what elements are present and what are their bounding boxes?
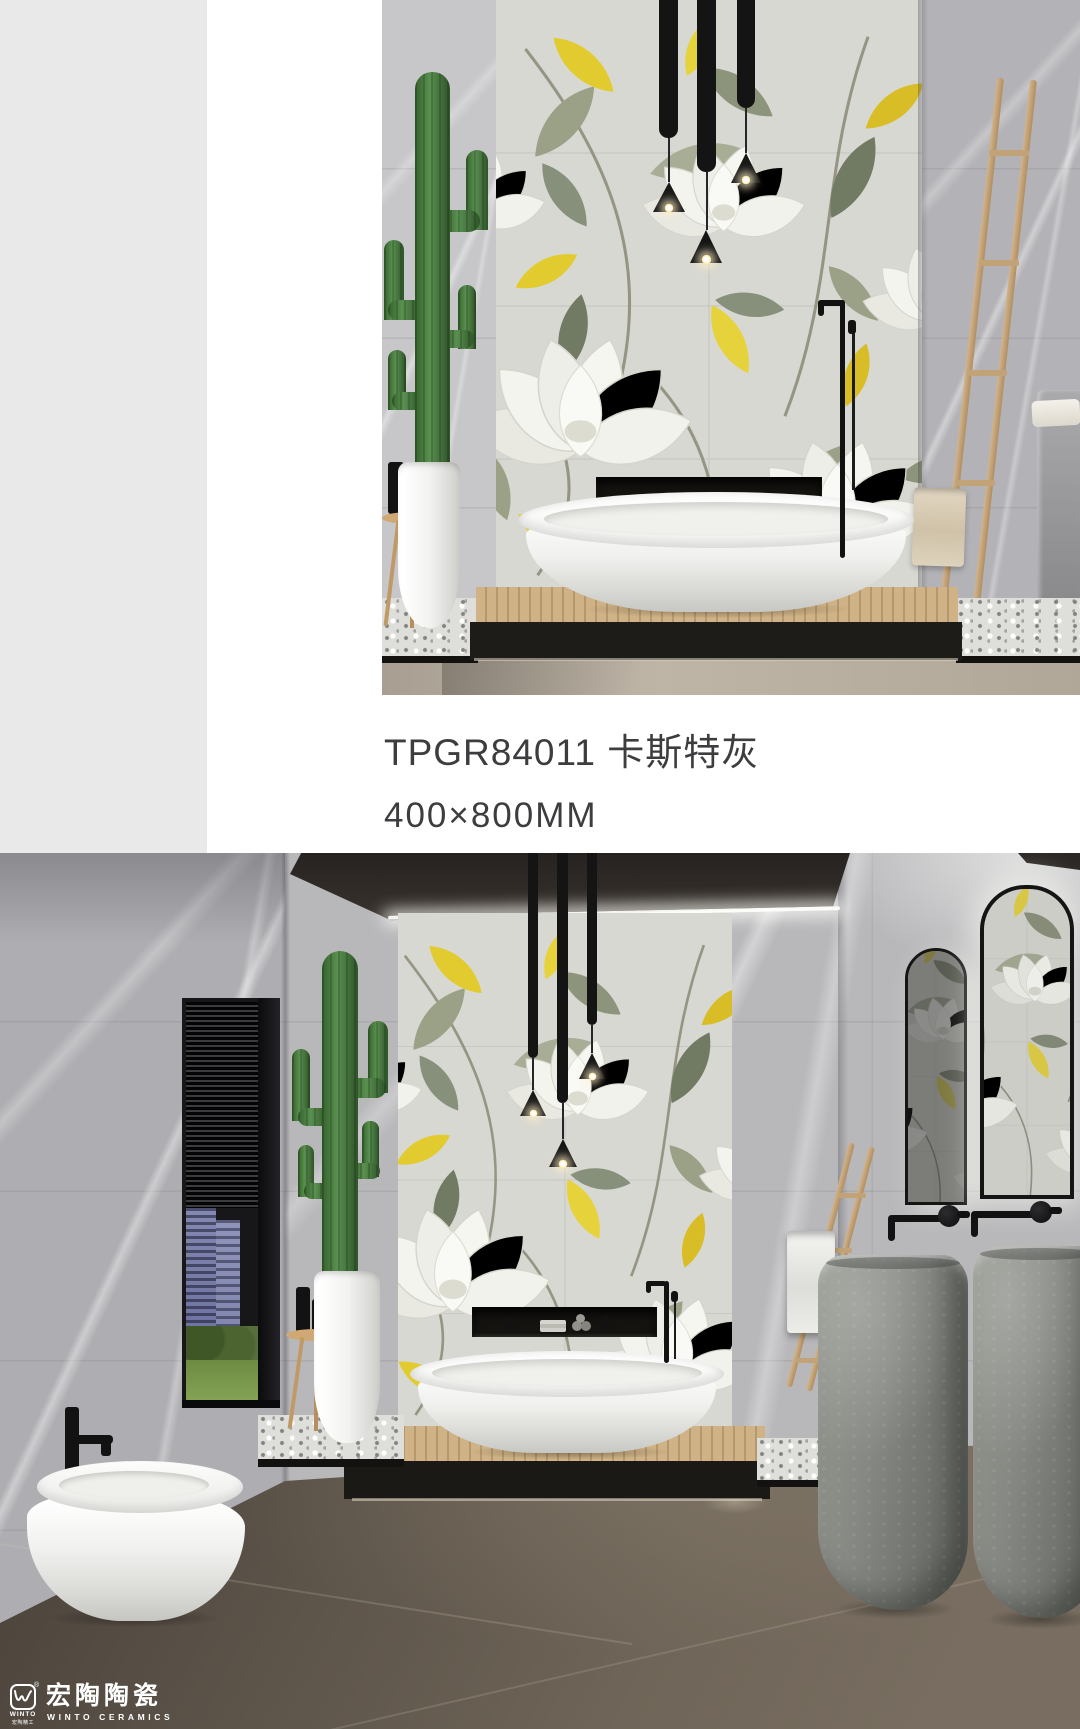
basin-top-rim [826,1257,960,1269]
bidet-faucet-tip [101,1441,111,1456]
ladder-rung [979,260,1019,266]
pendant-light-rod [737,0,755,108]
niche-bottle [514,1322,519,1332]
platform-black-fascia [344,1461,770,1499]
registered-mark: ® [34,1682,39,1689]
emblem-sub-cn: 宏陶精工 [7,1719,39,1726]
platform-black-fascia [470,622,962,660]
lawn [186,1360,258,1400]
pebble-edge-trim [382,656,478,663]
pendant-wire [591,1025,593,1053]
hand-shower-head [848,320,856,334]
arched-mirror-small [905,948,967,1205]
niche-soap [576,1314,585,1323]
product-size: 400×800MM [384,796,598,836]
pendant-light-rod [659,0,678,138]
pendant-wire [745,108,747,153]
platform-light-line [474,658,958,661]
brand-wordmark-cn: 宏陶陶瓷 [46,1684,162,1709]
ladder-rung [989,150,1029,156]
niche-bottle [506,1318,512,1332]
venetian-blinds [186,1002,258,1208]
left-gray-panel [0,0,207,853]
brand-logo: ® WINTO 宏陶精工 宏陶陶瓷 WINTO CERAMICS [10,1684,230,1728]
ladder-rung [967,370,1007,376]
pendant-bulb [529,1109,538,1118]
product-title: TPGR84011 卡斯特灰 [384,722,759,776]
bidet [15,1455,258,1635]
pebble-bed-right [956,598,1080,660]
niche-jar [612,1324,617,1332]
tub-filler-tip [818,300,824,316]
bathtub-inner-basin [432,1359,702,1387]
niche-towel-stack [540,1320,566,1332]
towel-on-pillar [1031,399,1080,427]
left-wall-top-shade [0,853,285,943]
emblem-sub-en: WINTO [7,1711,39,1718]
platform-light-line [352,1498,762,1501]
wall-faucet-handle [957,1211,970,1218]
pendant-bulb [664,203,674,213]
ladder-rung [955,480,995,486]
winto-emblem-icon [10,1684,36,1710]
pendant-light-rod [528,853,538,1058]
window [182,998,280,1408]
hand-shower-hose [674,1299,676,1359]
pendant-light-rod [697,0,716,172]
hanging-towel [912,487,967,567]
brand-wordmark-en: WINTO CERAMICS [47,1712,173,1722]
tub-filler-riser [840,300,845,558]
tub-filler-tip [646,1281,651,1293]
mirror-tint [908,951,964,1202]
hand-shower-head [671,1291,678,1302]
arched-mirror-large [980,885,1074,1199]
pendant-bulb [701,254,712,265]
window-sill [182,1400,280,1408]
pendant-wire [668,138,670,182]
bidet-inner [59,1471,209,1499]
pendant-wire [706,172,708,230]
pendant-bulb [741,175,751,185]
niche-bottle [602,1316,609,1332]
tub-filler-riser [664,1281,669,1363]
stone-pedestal-basin [973,1246,1080,1618]
wall-faucet-tip [971,1211,978,1237]
pendant-light-rod [587,853,597,1025]
catalog-page: TPGR84011 卡斯特灰 400×800MM [0,0,1080,1729]
stone-pedestal-basin [818,1255,968,1610]
hand-shower-hose [852,330,855,490]
wall-faucet-handle [1049,1207,1062,1214]
white-planter [398,462,460,628]
wall-faucet-tip [888,1215,895,1241]
top-scene-photo [382,0,1080,695]
pendant-wire [562,1103,564,1139]
pendant-wire [532,1058,534,1090]
bathtub-inner-basin [544,502,888,536]
stool-diffuser-bottle [296,1287,310,1333]
white-planter [314,1271,380,1443]
cactus-trunk [322,951,358,1296]
pebble-edge-trim [258,1459,404,1467]
pendant-light-rod [557,853,568,1103]
pendant-bulb [588,1072,597,1081]
bottom-scene-photo: ® WINTO 宏陶精工 宏陶陶瓷 WINTO CERAMICS [0,853,1080,1729]
window-view [186,1208,258,1400]
ladder-rung [838,1193,866,1198]
pendant-bulb [558,1159,568,1169]
window-frame-reveal [258,998,280,1408]
pebble-edge-trim [956,656,1080,663]
